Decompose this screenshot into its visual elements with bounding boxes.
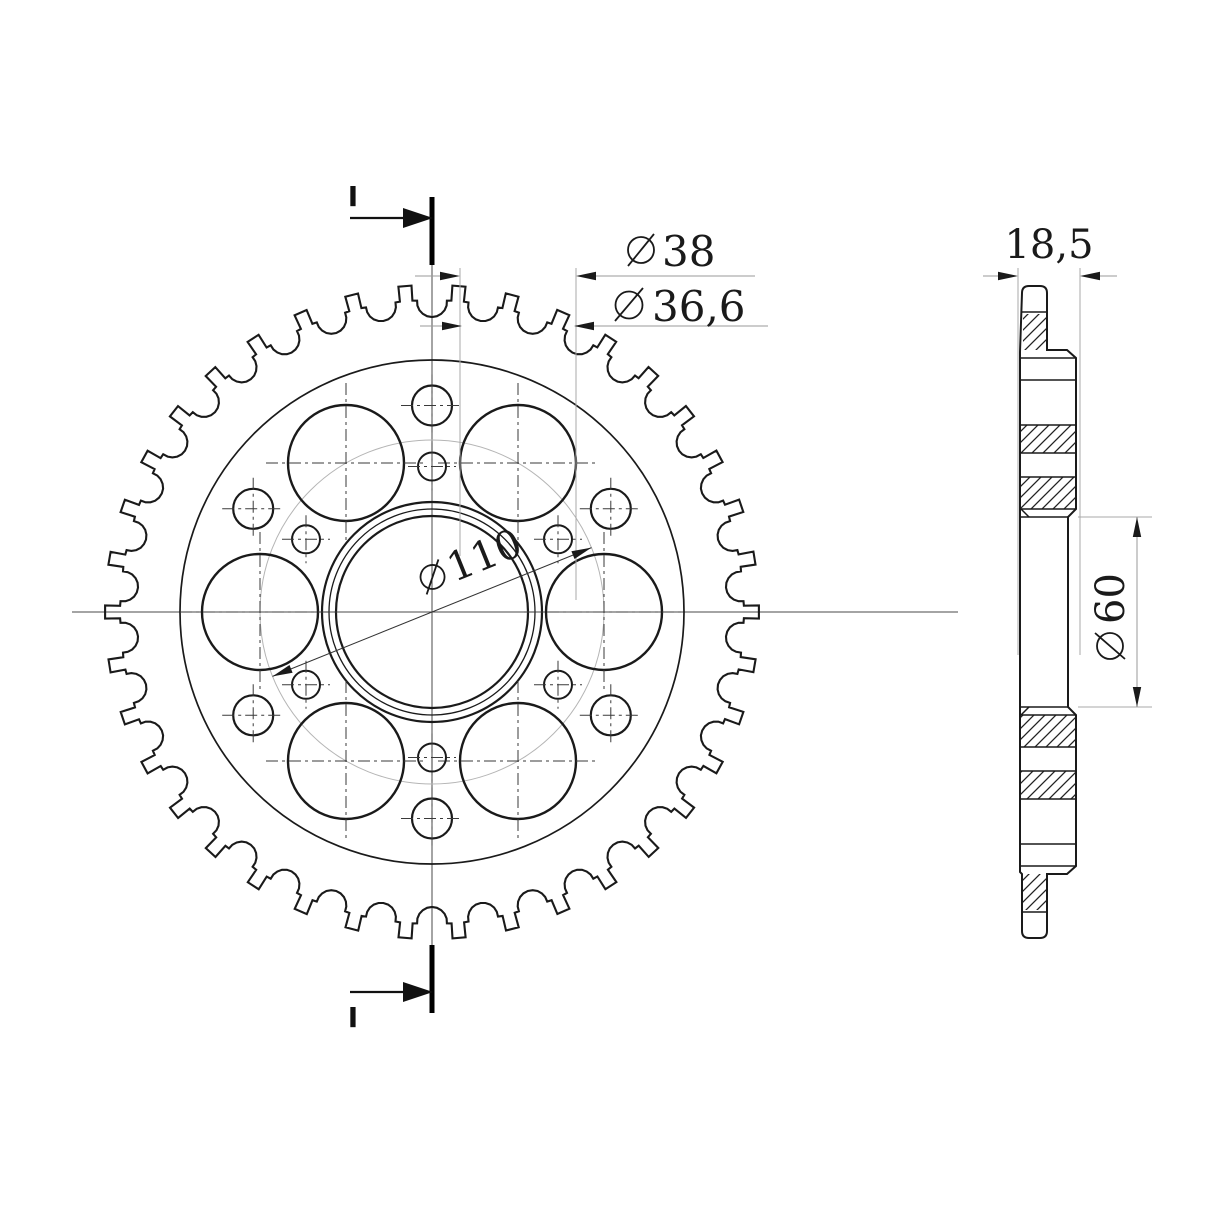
front-view: I I 38: [72, 180, 958, 1034]
drawing-svg: I I 38: [0, 0, 1214, 1214]
section-profile-outline: [1020, 286, 1076, 938]
dim-60-label: 60: [1088, 573, 1134, 659]
dimension-arrow: [1133, 687, 1141, 707]
side-view: 18,5 60: [983, 222, 1152, 938]
diameter-symbol: [615, 288, 643, 321]
dim-width: 18,5: [983, 222, 1117, 280]
dim-value-36-6: 36,6: [652, 282, 746, 331]
dim-bore-diameter: 60: [1078, 517, 1152, 707]
dimension-arrow: [442, 322, 462, 330]
dimension-arrow: [1133, 517, 1141, 537]
dim-large-hole-inner-diameter: 36,6: [420, 282, 768, 331]
section-cut-marker-bottom: I: [348, 945, 433, 1034]
section-label-bottom: I: [348, 1001, 358, 1034]
dim-value-38: 38: [662, 227, 715, 276]
dim-110-label: 110: [413, 520, 529, 602]
section-arrow-bottom: [403, 982, 433, 1002]
dimension-arrow: [1080, 272, 1100, 280]
dim-value-60: 60: [1088, 573, 1134, 624]
diameter-symbol: [628, 234, 654, 266]
section-label-top: I: [348, 180, 358, 213]
section-arrow-top: [403, 208, 433, 228]
dimension-arrow: [998, 272, 1018, 280]
diameter-symbol: [416, 559, 449, 594]
dimension-arrow: [440, 272, 460, 280]
dim-value-18-5: 18,5: [1004, 222, 1093, 268]
sprocket-technical-drawing: I I 38: [0, 0, 1214, 1214]
dimension-arrow: [574, 322, 594, 330]
dim-value-110: 110: [441, 520, 529, 591]
section-cut-marker-top: I: [348, 180, 433, 265]
diameter-symbol: [1095, 633, 1125, 659]
dimension-arrow: [576, 272, 596, 280]
